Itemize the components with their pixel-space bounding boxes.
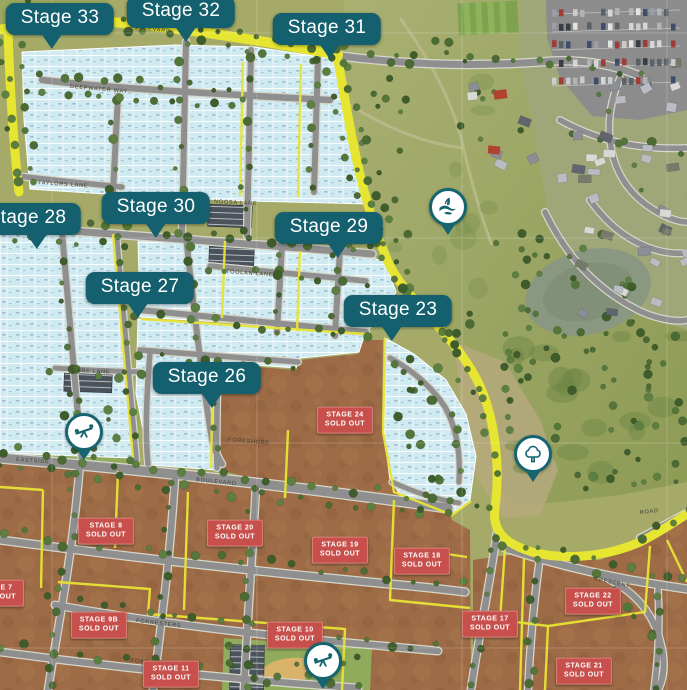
sold-out-badge-17: STAGE 17SOLD OUT (462, 611, 518, 638)
stage-callout-27[interactable]: Stage 27 (86, 272, 194, 304)
wetland-icon (429, 188, 467, 226)
callout-tail (26, 233, 48, 249)
pin-tail (76, 448, 92, 460)
sold-out-badge-8: STAGE 8SOLD OUT (78, 518, 134, 545)
sold-out-badge-19: STAGE 19SOLD OUT (312, 537, 368, 564)
stage-callout-28[interactable]: Stage 28 (0, 203, 81, 235)
stage-callout-label: Stage 32 (127, 0, 235, 28)
stage-callout-30[interactable]: Stage 30 (102, 192, 210, 224)
stage-callout-label: Stage 30 (102, 192, 210, 224)
stage-callout-29[interactable]: Stage 29 (275, 212, 383, 244)
stage-callout-label: Stage 26 (153, 362, 261, 394)
pin-tail (315, 677, 331, 689)
stage-callout-label: Stage 33 (6, 3, 114, 35)
callout-tail (145, 222, 167, 238)
sold-out-badge-22: STAGE 22SOLD OUT (565, 588, 621, 615)
playground-icon (65, 413, 103, 451)
sold-out-badge-21: STAGE 21SOLD OUT (556, 658, 612, 685)
playground-pin (65, 413, 103, 451)
callout-tail (381, 325, 403, 341)
stage-callout-32[interactable]: Stage 32 (127, 0, 235, 28)
sold-out-badge-20: STAGE 20SOLD OUT (207, 520, 263, 547)
sold-out-badge-18: STAGE 18SOLD OUT (394, 548, 450, 575)
callout-tail (319, 43, 341, 59)
masterplan-map: BOULEVARD DEEPWATER WAY TAYLORS LANE NOO… (0, 0, 687, 690)
playground-icon (304, 642, 342, 680)
callout-tail (41, 33, 63, 49)
stage-callout-31[interactable]: Stage 31 (273, 13, 381, 45)
tree-icon (514, 435, 552, 473)
callout-tail (327, 242, 349, 258)
stage-callout-label: Stage 27 (86, 272, 194, 304)
stage-callout-label: Stage 28 (0, 203, 81, 235)
stage-callout-label: Stage 31 (273, 13, 381, 45)
callout-tail (175, 26, 197, 42)
wetland-pin (429, 188, 467, 226)
sold-out-badge-9b: STAGE 9BSOLD OUT (71, 612, 127, 639)
callout-tail (201, 392, 223, 408)
stage-callout-label: Stage 23 (344, 295, 452, 327)
playground-pin-2 (304, 642, 342, 680)
stage-callout-label: Stage 29 (275, 212, 383, 244)
sold-out-badge-11: STAGE 11SOLD OUT (143, 661, 199, 688)
callout-tail (127, 302, 149, 318)
sold-out-badge-24: STAGE 24SOLD OUT (317, 407, 373, 434)
pin-tail (440, 223, 456, 235)
map-base-art: BOULEVARD DEEPWATER WAY TAYLORS LANE NOO… (0, 0, 687, 690)
stage-callout-26[interactable]: Stage 26 (153, 362, 261, 394)
stage-callout-23[interactable]: Stage 23 (344, 295, 452, 327)
sold-out-badge-7: STAGE 7SOLD OUT (0, 580, 24, 607)
stage-callout-33[interactable]: Stage 33 (6, 3, 114, 35)
pin-tail (525, 470, 541, 482)
tree-pin (514, 435, 552, 473)
